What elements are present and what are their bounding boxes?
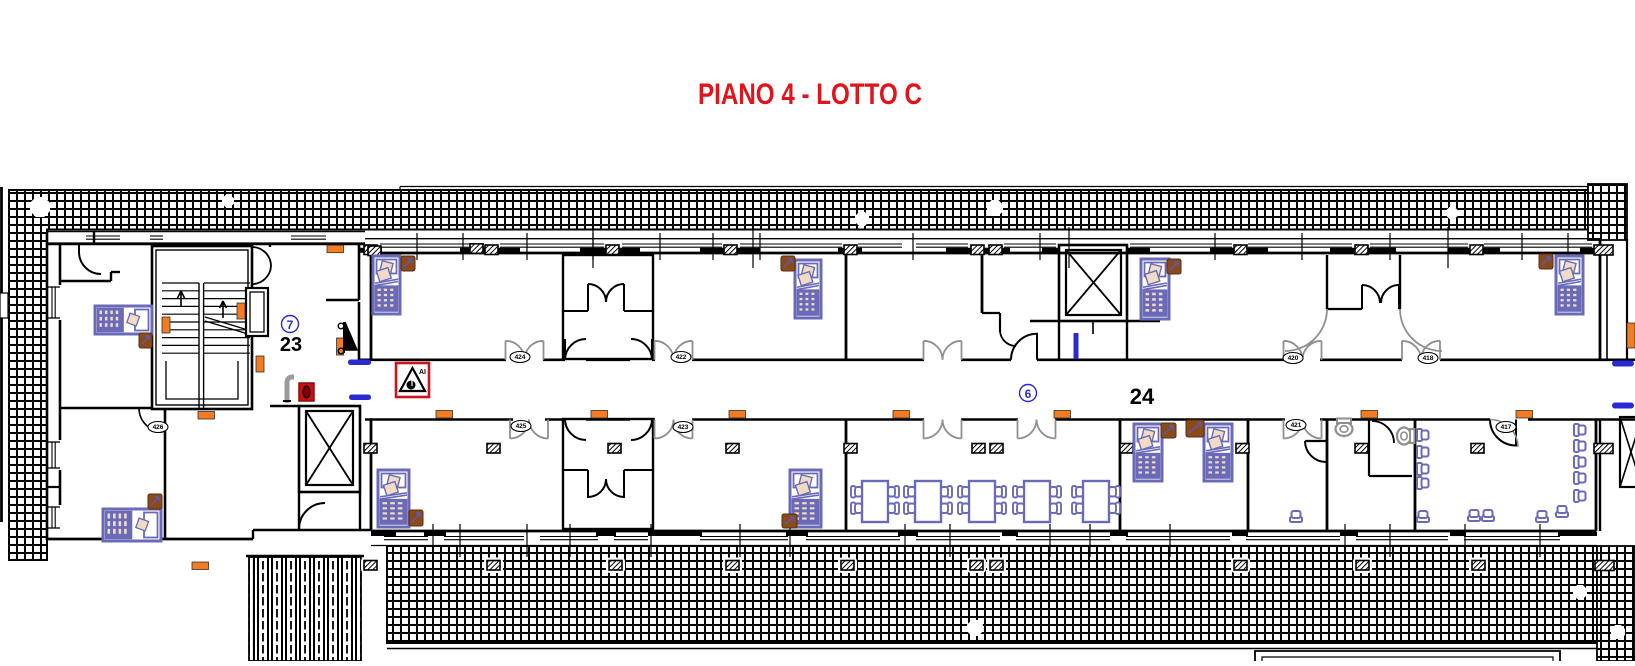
svg-text:PIANO 4 - LOTTO C: PIANO 4 - LOTTO C [698,78,922,111]
svg-text:24: 24 [1130,384,1155,409]
svg-text:AI: AI [419,369,426,376]
svg-text:424: 424 [515,354,526,361]
svg-text:23: 23 [280,334,302,356]
svg-text:6: 6 [1025,387,1032,401]
svg-text:423: 423 [678,424,689,431]
svg-text:417: 417 [1501,424,1512,431]
svg-text:418: 418 [1423,355,1434,362]
svg-text:422: 422 [676,354,687,361]
svg-text:420: 420 [1288,355,1299,362]
svg-text:7: 7 [287,318,294,332]
svg-text:426: 426 [153,424,164,431]
svg-text:421: 421 [1291,422,1302,429]
svg-text:425: 425 [516,423,527,430]
